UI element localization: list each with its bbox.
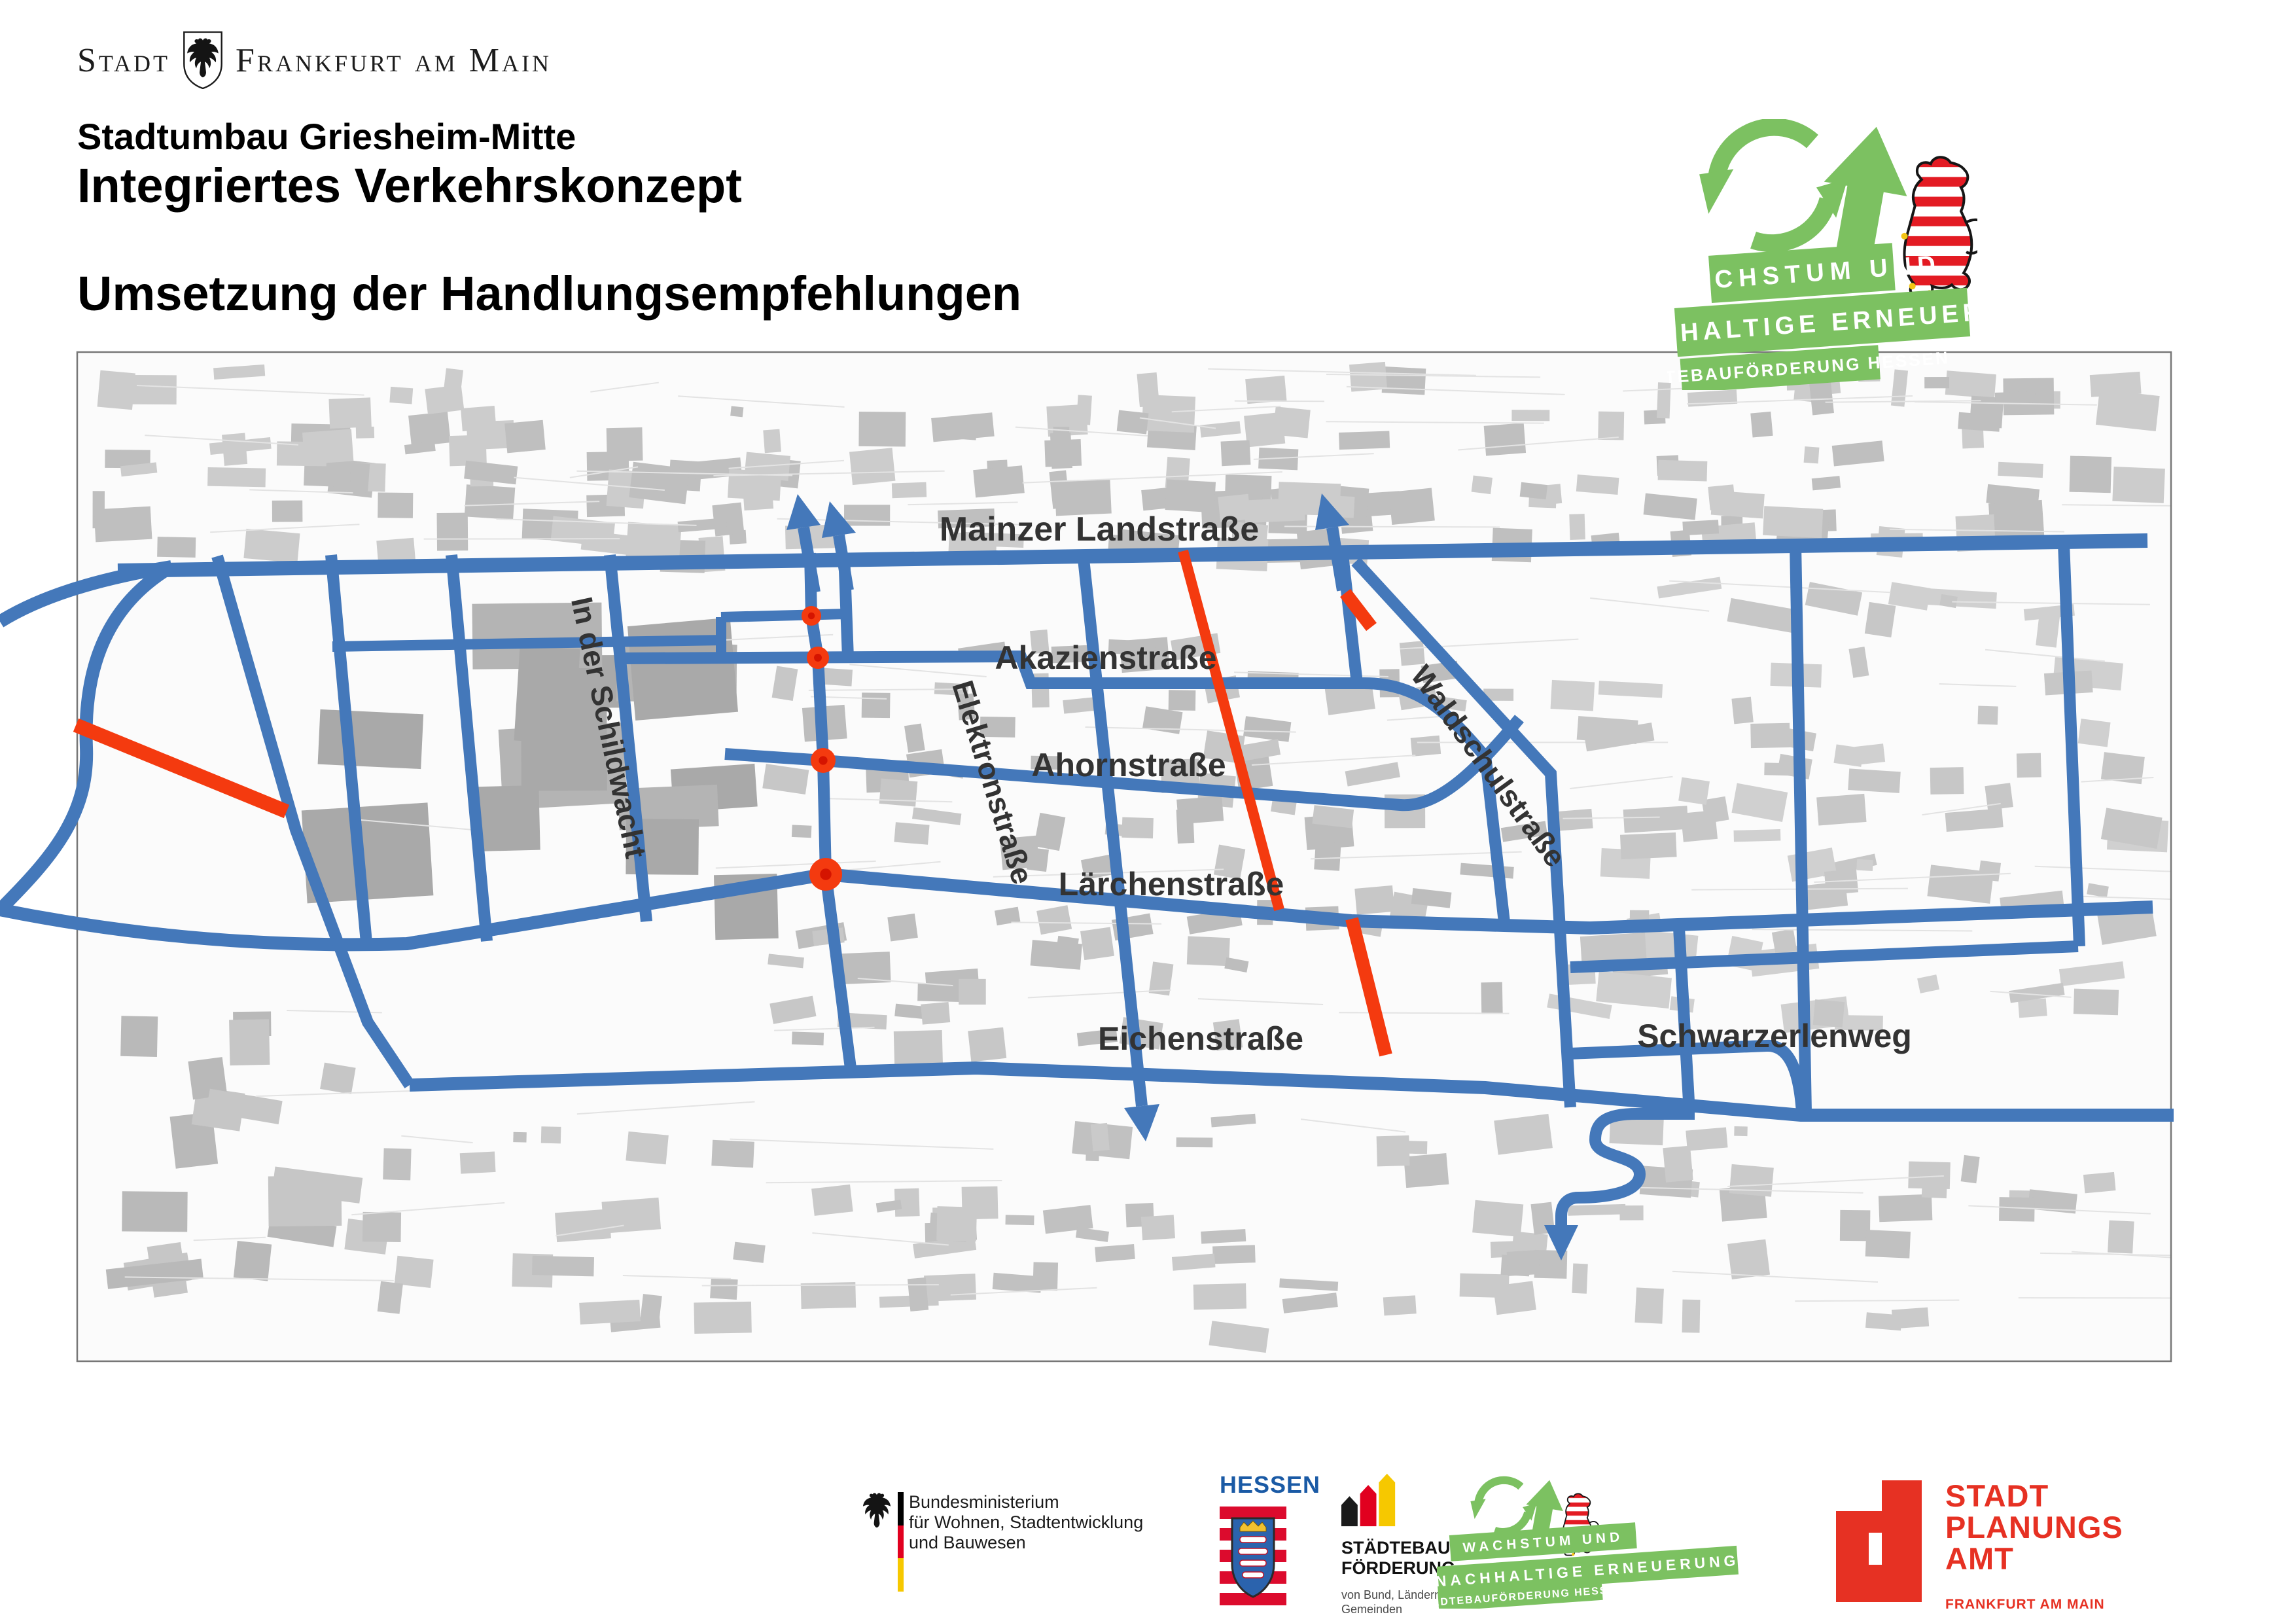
street-label: Schwarzerlenweg xyxy=(1637,1018,1912,1054)
staedtebau-houses-icon xyxy=(1341,1472,1398,1527)
poster-page: Stadt Frankfurt am Main Stadtumbau Gries… xyxy=(0,0,2296,1623)
logo-hessen: HESSEN xyxy=(1220,1471,1320,1606)
german-flag-bar xyxy=(898,1492,904,1592)
federal-eagle-icon xyxy=(862,1491,891,1529)
street-label: Eichenstraße xyxy=(1098,1020,1303,1057)
hessen-flag xyxy=(1220,1507,1286,1606)
hessen-shield-icon xyxy=(1231,1517,1275,1598)
page-title-2: Umsetzung der Handlungsempfehlungen xyxy=(77,268,1021,319)
street-label: Ahornstraße xyxy=(1031,747,1226,783)
street-label: Lärchenstraße xyxy=(1059,866,1284,902)
city-logo: Stadt Frankfurt am Main xyxy=(77,31,1021,89)
hessen-wordmark: HESSEN xyxy=(1220,1471,1320,1499)
logo-wachstum-small: WACHSTUM UNDNACHHALTIGE ERNEUERUNGSTÄDTE… xyxy=(1437,1474,1743,1609)
logo-bundesministerium: Bundesministerium für Wohnen, Stadtentwi… xyxy=(862,1487,1143,1592)
street-label: Akazienstraße xyxy=(995,639,1216,676)
frankfurt-crest-icon xyxy=(183,31,222,89)
street-label: Mainzer Landstraße xyxy=(940,510,1259,548)
city-logo-frankfurt: Frankfurt am Main xyxy=(236,41,552,80)
bmwsb-label: Bundesministerium für Wohnen, Stadtentwi… xyxy=(909,1487,1143,1553)
page-title: Integriertes Verkehrskonzept xyxy=(77,160,1021,211)
city-logo-stadt: Stadt xyxy=(77,41,170,80)
logo-stadtplanungsamt: STADT PLANUNGS AMT FRANKFURT AM MAIN xyxy=(1836,1480,2123,1613)
program-logo-wachstum: WACHSTUM UNDNACHHALTIGE ERNEUERUNGSTÄDTE… xyxy=(1667,119,1977,390)
header: Stadt Frankfurt am Main Stadtumbau Gries… xyxy=(77,31,1021,319)
stadtplanungsamt-label: STADT PLANUNGS AMT FRANKFURT AM MAIN xyxy=(1945,1480,2123,1613)
subtitle: Stadtumbau Griesheim-Mitte xyxy=(77,118,1021,156)
stadtplanungsamt-icon xyxy=(1836,1480,1922,1602)
